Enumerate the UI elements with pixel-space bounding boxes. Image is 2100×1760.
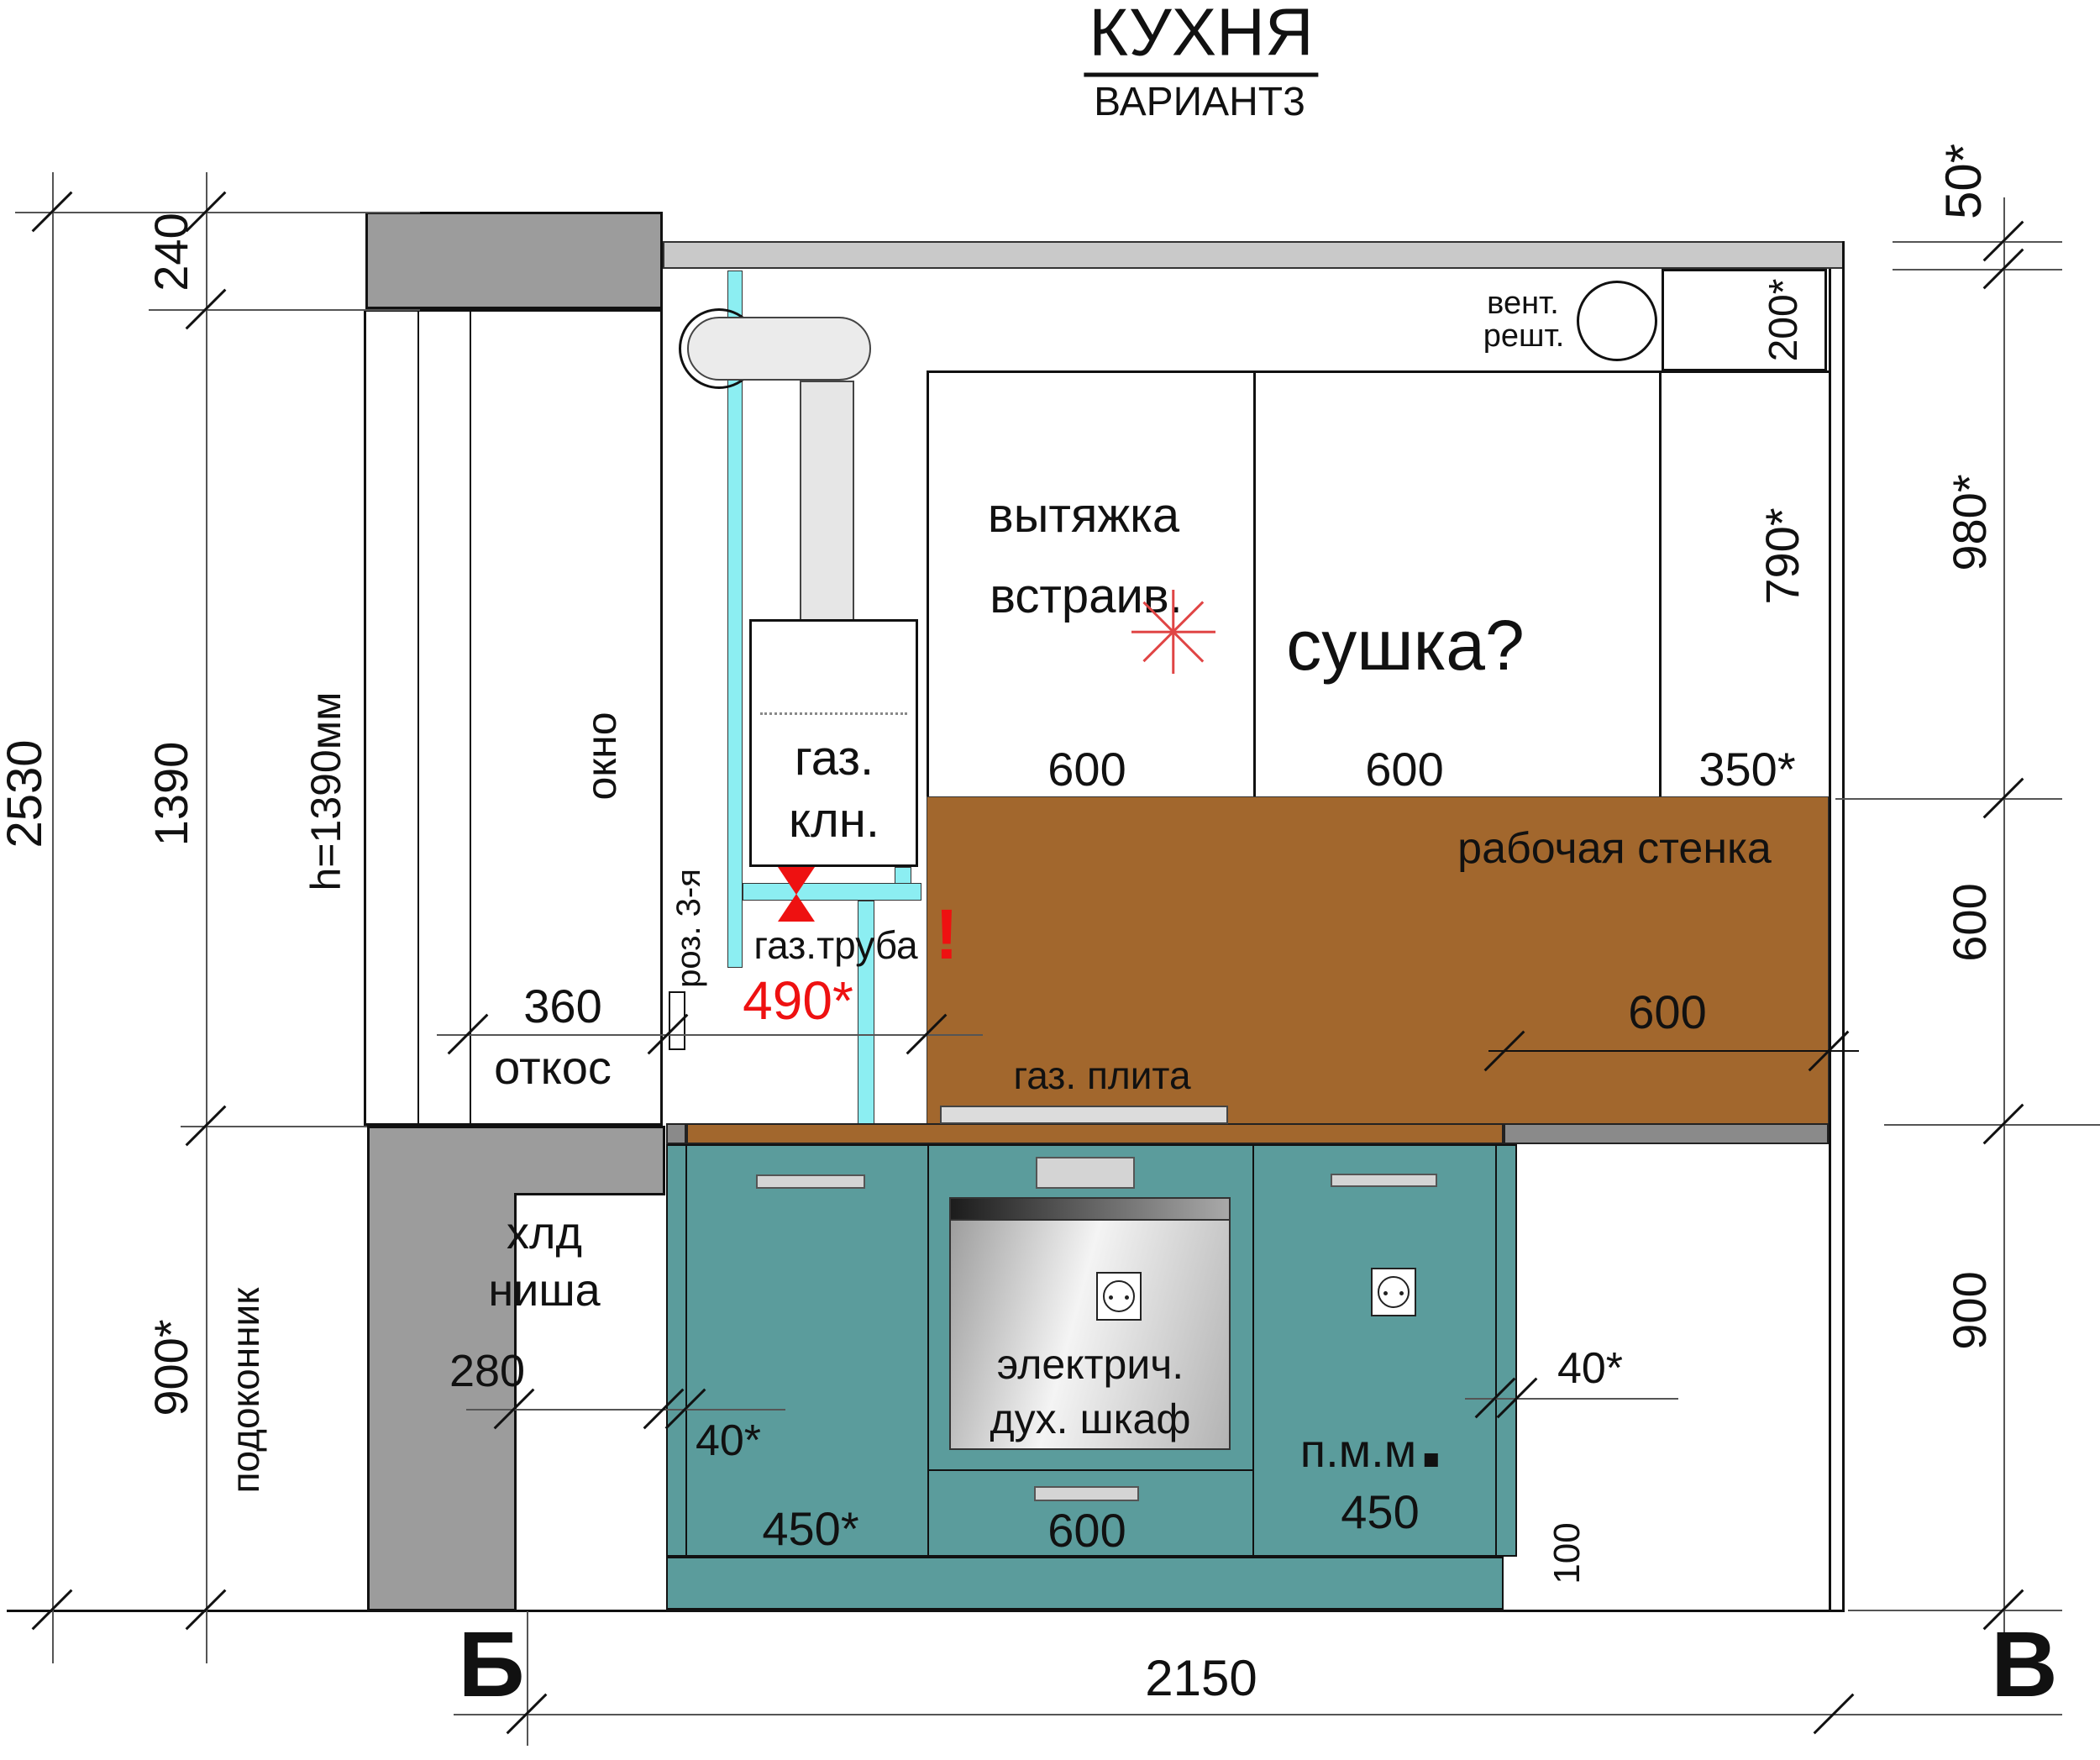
dim-line-slope [437, 1034, 983, 1036]
window-mullion-1 [417, 309, 419, 1126]
oven-drawer-handle [1034, 1486, 1139, 1501]
oven-drawer-line [927, 1469, 1252, 1471]
wall-cabinet-top-line [927, 370, 1829, 373]
dim-line-right [2003, 197, 2005, 1659]
pmm-label: п.м.м [1300, 1427, 1438, 1474]
gas-valve-icon [778, 894, 815, 922]
socket-note-label: роз. 3-я [672, 869, 706, 988]
right-wall-outer-line [1842, 241, 1845, 1611]
dry-width-dim: 600 [1365, 746, 1443, 793]
axis-marker-v: В [1991, 1619, 2057, 1711]
ext-line-ceiling-top [1893, 241, 2062, 243]
tall-height-dim: 790* [1759, 507, 1806, 604]
gas-pipe-horizontal [743, 883, 921, 901]
flue-cowl [687, 317, 871, 381]
ext-line-floor-right [1848, 1610, 2062, 1611]
lintel-wall-block [365, 212, 663, 309]
hood-label-1: вытяжка [988, 491, 1179, 540]
window-mullion-2 [470, 309, 471, 1126]
right-wall-inner-line [1829, 269, 1831, 1611]
dim-line-left-inner [206, 172, 207, 1663]
door1-right-edge [927, 1144, 929, 1557]
warning-mark: ! [935, 899, 958, 969]
ext-line-cabinet-bottom [1835, 798, 2062, 800]
vent-grille-icon [1577, 281, 1657, 361]
drying-cabinet-label: сушка? [1286, 610, 1524, 680]
base-height-dim: 900 [1946, 1271, 1993, 1349]
plinth-height-dim: 100 [1549, 1522, 1586, 1584]
niche-label-1: хлд [507, 1211, 582, 1256]
page-title: КУХНЯ [1084, 0, 1318, 77]
oven-label-2: дух. шкаф [990, 1398, 1191, 1440]
gas-stove-top [940, 1106, 1228, 1124]
dim-line-overall [52, 172, 54, 1663]
door1-width-dim: 450* [762, 1505, 858, 1552]
upper-zone-dim: 980* [1946, 474, 1993, 570]
hood-width-dim: 600 [1047, 746, 1126, 793]
overall-height-dim: 2530 [1, 739, 50, 848]
slope-word: откос [494, 1044, 612, 1091]
plinth [666, 1557, 1504, 1610]
oven-cabinet-right-edge [1252, 1144, 1254, 1557]
door1-handle [756, 1174, 865, 1189]
power-socket-icon [1096, 1272, 1142, 1321]
sill-height-dim: 900* [148, 1319, 195, 1416]
window-label: окно [580, 712, 622, 800]
tall-cabinet-left-edge [1659, 370, 1662, 796]
axis-marker-b: Б [458, 1619, 524, 1711]
backsplash-label: рабочая стенка [1457, 827, 1772, 870]
ext-line-sill [181, 1126, 367, 1127]
window-height-label: h=1390мм [305, 692, 347, 891]
oven-control-panel [949, 1197, 1231, 1221]
pmm-width-dim: 450 [1341, 1489, 1419, 1536]
pmm-handle [1331, 1174, 1437, 1187]
pmm-right-edge [1495, 1144, 1497, 1557]
boiler-label-2: клн. [789, 796, 879, 845]
ceiling-gap-dim: 50* [1939, 144, 1989, 219]
ext-line-top [15, 212, 420, 213]
tall-width-dim: 350* [1698, 746, 1795, 793]
podokonnik-label: подоконник [226, 1288, 265, 1494]
gap-left-dim: 40* [696, 1419, 761, 1463]
stove-label: газ. плита [1013, 1056, 1190, 1095]
wall-cabinet-divider [1253, 370, 1256, 796]
boiler-exhaust-duct [800, 381, 854, 622]
wall-cabinet-left-edge [927, 370, 929, 796]
niche-label-2: ниша [488, 1268, 600, 1313]
pmm-text: п.м.м [1300, 1424, 1416, 1477]
dim-line-total [454, 1714, 2062, 1715]
gap-right-dim: 40* [1557, 1347, 1623, 1390]
countertop-wood [686, 1123, 1504, 1144]
ext-line-axis-b [527, 1611, 528, 1746]
countertop-right [1504, 1123, 1829, 1144]
oven-label-1: электрич. [997, 1343, 1184, 1385]
boiler-water-line [760, 712, 907, 715]
lintel-dim: 240 [148, 213, 195, 291]
backsplash-600-dim: 600 [1628, 989, 1706, 1036]
power-socket-icon [1371, 1268, 1416, 1316]
pmm-dot-icon [1425, 1453, 1438, 1467]
ext-line-lintel-bottom [149, 309, 420, 311]
slope-dim: 360 [523, 983, 601, 1030]
page-subtitle: ВАРИАНТ3 [1094, 82, 1305, 123]
vent-box-dim: 200* [1764, 279, 1804, 362]
oven-top-handle [1036, 1157, 1135, 1189]
boiler-label-1: газ. [795, 734, 874, 783]
niche-width-dim: 280 [449, 1348, 525, 1394]
gas-valve-icon [778, 867, 815, 895]
dim-line-gap-right [1465, 1398, 1678, 1400]
total-width-dim: 2150 [1145, 1653, 1257, 1704]
vent-label-1: вент. [1487, 287, 1559, 319]
gas-pipe-label: газ.труба [753, 926, 917, 964]
floor-line [7, 1610, 1845, 1612]
dim-line-600-backsplash [1488, 1050, 1859, 1052]
oven-width-dim: 600 [1047, 1507, 1126, 1554]
ext-line-counter [1884, 1124, 2100, 1126]
gas-offset-dim: 490* [743, 974, 853, 1027]
ext-line-ceiling-bottom [1893, 269, 2062, 271]
backsplash-height-dim: 600 [1946, 883, 1993, 961]
ceiling-slab [663, 241, 1845, 269]
vent-label-2: решт. [1483, 320, 1565, 352]
door1-left-edge [685, 1144, 687, 1557]
window-dim: 1390 [148, 742, 195, 847]
kitchen-elevation-drawing: КУХНЯ ВАРИАНТ3 окно h=1390мм хлд ниша 20… [0, 0, 2100, 1760]
countertop-left-cap [666, 1123, 686, 1144]
